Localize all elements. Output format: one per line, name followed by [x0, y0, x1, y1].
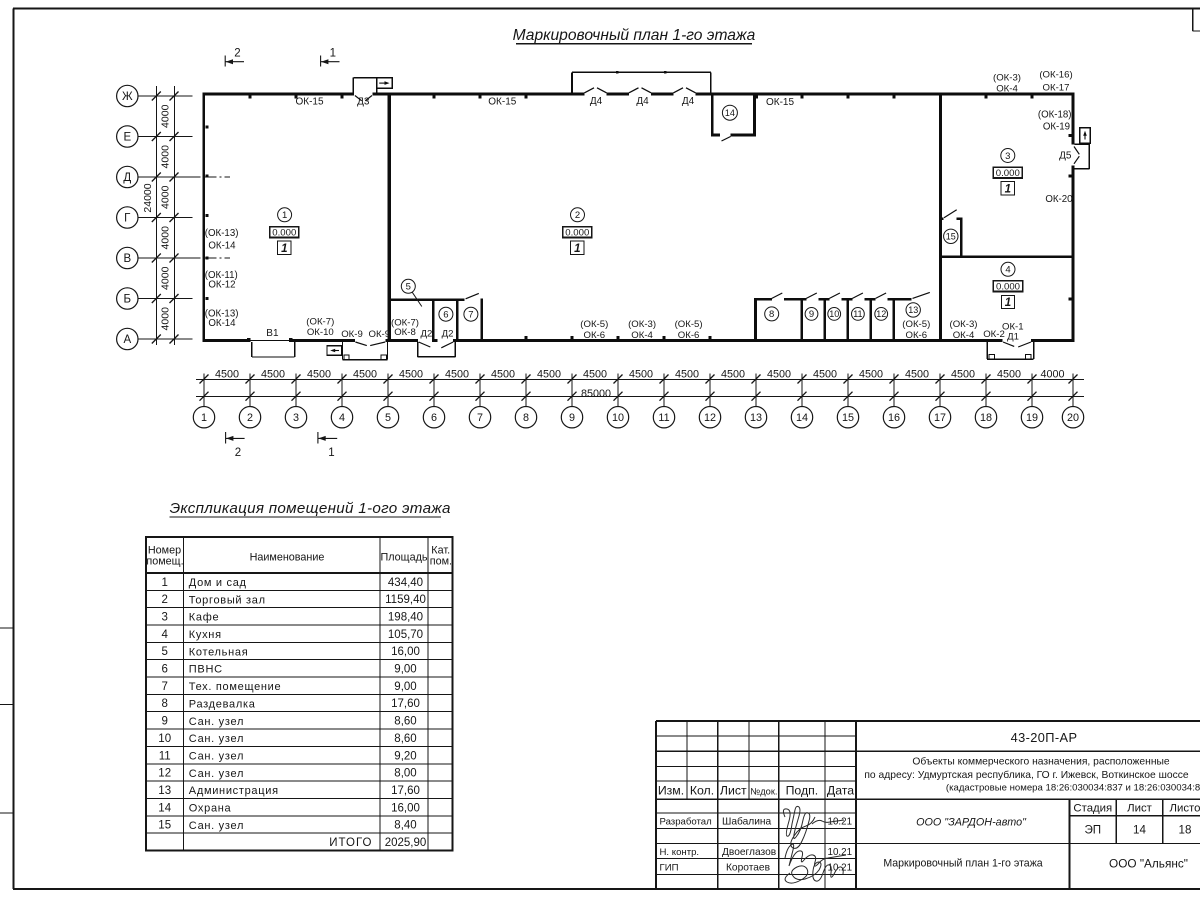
svg-text:Сан. узел: Сан. узел: [189, 751, 244, 763]
svg-text:15: 15: [842, 412, 854, 424]
svg-text:10: 10: [829, 309, 839, 319]
svg-text:ОК-4: ОК-4: [953, 330, 975, 341]
svg-text:Дата: Дата: [827, 784, 854, 798]
svg-text:Сан. узел: Сан. узел: [189, 716, 244, 728]
svg-text:7: 7: [161, 681, 167, 693]
svg-text:4500: 4500: [215, 369, 239, 381]
svg-text:14: 14: [1133, 823, 1146, 836]
svg-text:пом.: пом.: [430, 556, 452, 568]
svg-text:9,00: 9,00: [394, 681, 416, 693]
svg-text:1: 1: [1005, 297, 1011, 309]
svg-text:9: 9: [809, 309, 814, 320]
svg-text:16,00: 16,00: [391, 646, 420, 658]
svg-text:4: 4: [161, 629, 168, 641]
svg-text:4000: 4000: [160, 266, 172, 290]
svg-text:4500: 4500: [399, 369, 423, 381]
svg-text:Тех. помещение: Тех. помещение: [189, 681, 282, 693]
svg-text:Сан. узел: Сан. узел: [189, 768, 244, 780]
svg-text:11: 11: [159, 750, 171, 762]
svg-text:4000: 4000: [1040, 369, 1064, 381]
svg-text:1159,40: 1159,40: [385, 594, 426, 606]
svg-text:43-20П-АР: 43-20П-АР: [1011, 730, 1078, 745]
svg-text:В1: В1: [266, 328, 279, 339]
svg-text:16,00: 16,00: [391, 802, 420, 814]
svg-text:12: 12: [704, 412, 716, 424]
svg-text:ОК-6: ОК-6: [584, 330, 606, 341]
svg-text:6: 6: [443, 310, 448, 321]
svg-text:4000: 4000: [160, 185, 172, 209]
svg-text:4500: 4500: [353, 369, 377, 381]
svg-text:18: 18: [1179, 823, 1192, 836]
svg-text:ОК-9: ОК-9: [341, 329, 363, 340]
svg-text:4500: 4500: [905, 369, 929, 381]
svg-text:4500: 4500: [629, 369, 653, 381]
svg-text:Торговый зал: Торговый зал: [189, 594, 266, 606]
svg-text:4500: 4500: [997, 369, 1021, 381]
svg-text:4500: 4500: [583, 369, 607, 381]
svg-text:15: 15: [158, 820, 171, 832]
svg-text:ОК-8: ОК-8: [394, 327, 416, 338]
svg-text:4000: 4000: [160, 307, 172, 331]
svg-text:(ОК-5): (ОК-5): [580, 319, 608, 330]
svg-text:(ОК-18): (ОК-18): [1038, 110, 1072, 121]
svg-text:А: А: [123, 334, 131, 346]
svg-text:Н. контр.: Н. контр.: [660, 847, 700, 858]
svg-text:Кафе: Кафе: [189, 612, 220, 624]
svg-text:15: 15: [946, 232, 956, 242]
svg-text:Двоеглазов: Двоеглазов: [722, 847, 776, 858]
svg-text:ООО "ЗАРДОН-авто": ООО "ЗАРДОН-авто": [916, 817, 1027, 829]
svg-text:Д5: Д5: [1059, 150, 1072, 161]
svg-text:Д3: Д3: [357, 96, 370, 107]
svg-text:14: 14: [158, 802, 171, 814]
svg-text:Сан. узел: Сан. узел: [189, 733, 244, 745]
svg-text:8,60: 8,60: [394, 733, 416, 745]
svg-text:ООО "Альянс": ООО "Альянс": [1109, 856, 1188, 870]
svg-text:4500: 4500: [537, 369, 561, 381]
svg-text:7: 7: [477, 412, 483, 424]
svg-text:ОК-14: ОК-14: [208, 241, 236, 252]
svg-text:4: 4: [339, 412, 345, 424]
svg-text:(ОК-3): (ОК-3): [950, 319, 978, 330]
svg-text:(ОК-3): (ОК-3): [993, 72, 1021, 83]
svg-text:1: 1: [330, 48, 336, 60]
svg-text:19: 19: [1026, 412, 1038, 424]
svg-text:20: 20: [1067, 412, 1079, 424]
svg-text:по адресу: Удмуртская республи: по адресу: Удмуртская республика, ГО г. …: [864, 769, 1189, 781]
svg-text:Раздевалка: Раздевалка: [189, 698, 256, 710]
svg-text:9,00: 9,00: [394, 664, 416, 676]
svg-text:Шабалина: Шабалина: [722, 816, 772, 828]
svg-text:Стадия: Стадия: [1073, 803, 1112, 815]
svg-text:10: 10: [158, 733, 171, 745]
svg-text:11: 11: [658, 412, 669, 424]
svg-text:ОК-4: ОК-4: [631, 330, 653, 341]
svg-text:3: 3: [161, 612, 167, 624]
svg-text:17: 17: [934, 412, 946, 424]
svg-text:12: 12: [158, 768, 171, 780]
svg-text:4000: 4000: [160, 226, 172, 250]
svg-text:0.000: 0.000: [565, 228, 589, 239]
svg-text:13: 13: [908, 305, 918, 315]
svg-text:8,00: 8,00: [394, 768, 416, 780]
svg-text:Е: Е: [123, 132, 131, 144]
svg-text:2: 2: [234, 48, 240, 60]
svg-text:ЭП: ЭП: [1084, 823, 1101, 836]
svg-text:5: 5: [406, 282, 411, 293]
svg-text:2025,90: 2025,90: [385, 837, 427, 849]
svg-text:10: 10: [612, 412, 624, 424]
svg-text:8: 8: [523, 412, 529, 424]
svg-text:Коротаев: Коротаев: [726, 862, 770, 873]
svg-text:4500: 4500: [767, 369, 791, 381]
svg-text:Д2: Д2: [442, 329, 454, 340]
svg-text:ОК-15: ОК-15: [766, 97, 794, 108]
svg-text:(кадастровые номера 18:26:0300: (кадастровые номера 18:26:030034:837 и 1…: [946, 783, 1200, 794]
svg-text:ОК-12: ОК-12: [208, 279, 235, 290]
svg-text:Д4: Д4: [636, 96, 649, 107]
svg-text:8: 8: [769, 309, 774, 320]
svg-text:9: 9: [569, 412, 575, 424]
svg-text:ИТОГО: ИТОГО: [329, 837, 372, 849]
svg-text:8,40: 8,40: [394, 820, 416, 832]
svg-text:1: 1: [281, 243, 287, 255]
svg-text:105,70: 105,70: [388, 629, 423, 641]
svg-text:1: 1: [328, 447, 334, 459]
svg-text:4000: 4000: [160, 145, 172, 169]
svg-text:ПВНС: ПВНС: [189, 664, 223, 676]
svg-text:4500: 4500: [813, 369, 837, 381]
svg-text:Д4: Д4: [682, 96, 695, 107]
svg-text:Б: Б: [124, 294, 132, 306]
svg-text:8: 8: [161, 698, 167, 710]
svg-text:4500: 4500: [491, 369, 515, 381]
svg-text:2: 2: [161, 594, 167, 606]
svg-text:0.000: 0.000: [996, 282, 1020, 293]
svg-text:11: 11: [853, 309, 862, 319]
svg-text:Листов: Листов: [1169, 803, 1200, 815]
svg-text:Объекты коммерческого назначен: Объекты коммерческого назначения, распол…: [912, 756, 1170, 768]
svg-text:4500: 4500: [675, 369, 699, 381]
svg-text:0.000: 0.000: [272, 228, 296, 239]
svg-text:Котельная: Котельная: [189, 646, 249, 658]
svg-text:№док.: №док.: [750, 787, 777, 797]
svg-text:ОК-20: ОК-20: [1045, 194, 1073, 205]
svg-text:Ж: Ж: [122, 91, 133, 103]
svg-text:13: 13: [750, 412, 762, 424]
svg-text:Охрана: Охрана: [189, 803, 232, 815]
svg-text:17,60: 17,60: [391, 698, 420, 710]
svg-text:(ОК-5): (ОК-5): [675, 319, 703, 330]
svg-text:4500: 4500: [445, 369, 469, 381]
svg-text:Подп.: Подп.: [786, 784, 819, 798]
svg-text:ОК-6: ОК-6: [906, 330, 928, 341]
svg-text:Кол.: Кол.: [690, 784, 714, 798]
svg-text:4500: 4500: [261, 369, 285, 381]
svg-text:Площадь: Площадь: [381, 551, 428, 563]
svg-text:8,60: 8,60: [394, 716, 416, 728]
svg-text:(ОК-16): (ОК-16): [1039, 70, 1072, 81]
svg-text:(ОК-7): (ОК-7): [306, 317, 334, 328]
svg-text:4: 4: [1005, 265, 1010, 276]
svg-text:1: 1: [201, 412, 207, 424]
svg-text:(ОК-5): (ОК-5): [902, 319, 930, 330]
svg-text:18: 18: [980, 412, 992, 424]
svg-text:Г: Г: [124, 213, 131, 225]
svg-text:помещ.: помещ.: [146, 556, 183, 568]
svg-text:Кухня: Кухня: [189, 629, 222, 641]
svg-text:ОК-19: ОК-19: [1043, 121, 1070, 132]
svg-text:1: 1: [1005, 184, 1011, 196]
svg-text:(ОК-3): (ОК-3): [628, 319, 656, 330]
svg-text:9,20: 9,20: [394, 750, 416, 762]
svg-text:1: 1: [282, 210, 287, 221]
svg-text:Лист: Лист: [1127, 803, 1153, 815]
svg-text:14: 14: [725, 108, 735, 118]
svg-text:Лист: Лист: [720, 784, 747, 798]
svg-text:Д: Д: [123, 172, 131, 184]
svg-text:ОК-6: ОК-6: [678, 330, 700, 341]
svg-text:В: В: [123, 253, 131, 265]
svg-text:ОК-15: ОК-15: [488, 96, 516, 107]
svg-text:ГИП: ГИП: [660, 862, 679, 873]
svg-text:Изм.: Изм.: [658, 784, 684, 798]
svg-text:ОК-4: ОК-4: [996, 84, 1018, 95]
svg-text:2: 2: [235, 447, 241, 459]
svg-text:198,40: 198,40: [388, 612, 423, 624]
svg-text:ОК-10: ОК-10: [307, 327, 334, 338]
svg-text:Дом и сад: Дом и сад: [189, 577, 247, 589]
svg-text:4000: 4000: [160, 104, 172, 128]
svg-text:5: 5: [161, 646, 167, 658]
svg-text:24000: 24000: [142, 183, 154, 212]
svg-text:0.000: 0.000: [996, 168, 1020, 179]
svg-text:85000: 85000: [581, 388, 611, 400]
svg-text:Д1: Д1: [1007, 332, 1019, 343]
svg-text:2: 2: [575, 210, 580, 221]
svg-text:Д2: Д2: [420, 329, 432, 340]
svg-text:Экспликация помещений 1-ого эт: Экспликация помещений 1-ого этажа: [170, 500, 451, 517]
svg-text:4500: 4500: [307, 369, 331, 381]
svg-text:ОК-14: ОК-14: [208, 318, 236, 329]
svg-text:6: 6: [161, 664, 167, 676]
svg-text:4500: 4500: [859, 369, 883, 381]
svg-text:7: 7: [468, 310, 473, 321]
svg-text:Маркировочный план 1-го этажа: Маркировочный план 1-го этажа: [513, 27, 756, 44]
svg-text:9: 9: [161, 716, 167, 728]
svg-text:6: 6: [431, 412, 437, 424]
svg-text:Разработал: Разработал: [660, 817, 712, 828]
svg-text:ОК-15: ОК-15: [295, 96, 323, 107]
svg-text:(ОК-13): (ОК-13): [205, 228, 239, 239]
svg-text:ОК-9: ОК-9: [369, 329, 391, 340]
svg-text:1: 1: [161, 577, 167, 589]
svg-text:Наименование: Наименование: [250, 551, 325, 563]
svg-text:Сан. узел: Сан. узел: [189, 820, 244, 832]
svg-text:5: 5: [385, 412, 391, 424]
svg-text:3: 3: [1005, 151, 1010, 162]
svg-text:1: 1: [574, 243, 580, 255]
svg-text:13: 13: [158, 785, 171, 797]
svg-text:14: 14: [796, 412, 808, 424]
svg-text:434,40: 434,40: [388, 577, 423, 589]
svg-text:Маркировочный план 1-го этажа: Маркировочный план 1-го этажа: [883, 858, 1042, 870]
svg-text:16: 16: [888, 412, 900, 424]
svg-text:Д4: Д4: [590, 96, 603, 107]
svg-text:4500: 4500: [721, 369, 745, 381]
svg-text:2: 2: [247, 412, 253, 424]
svg-text:12: 12: [876, 309, 886, 319]
svg-text:4500: 4500: [951, 369, 975, 381]
svg-text:17,60: 17,60: [391, 785, 420, 797]
svg-text:3: 3: [293, 412, 299, 424]
svg-text:ОК-17: ОК-17: [1043, 82, 1070, 93]
svg-text:Администрация: Администрация: [189, 785, 279, 797]
